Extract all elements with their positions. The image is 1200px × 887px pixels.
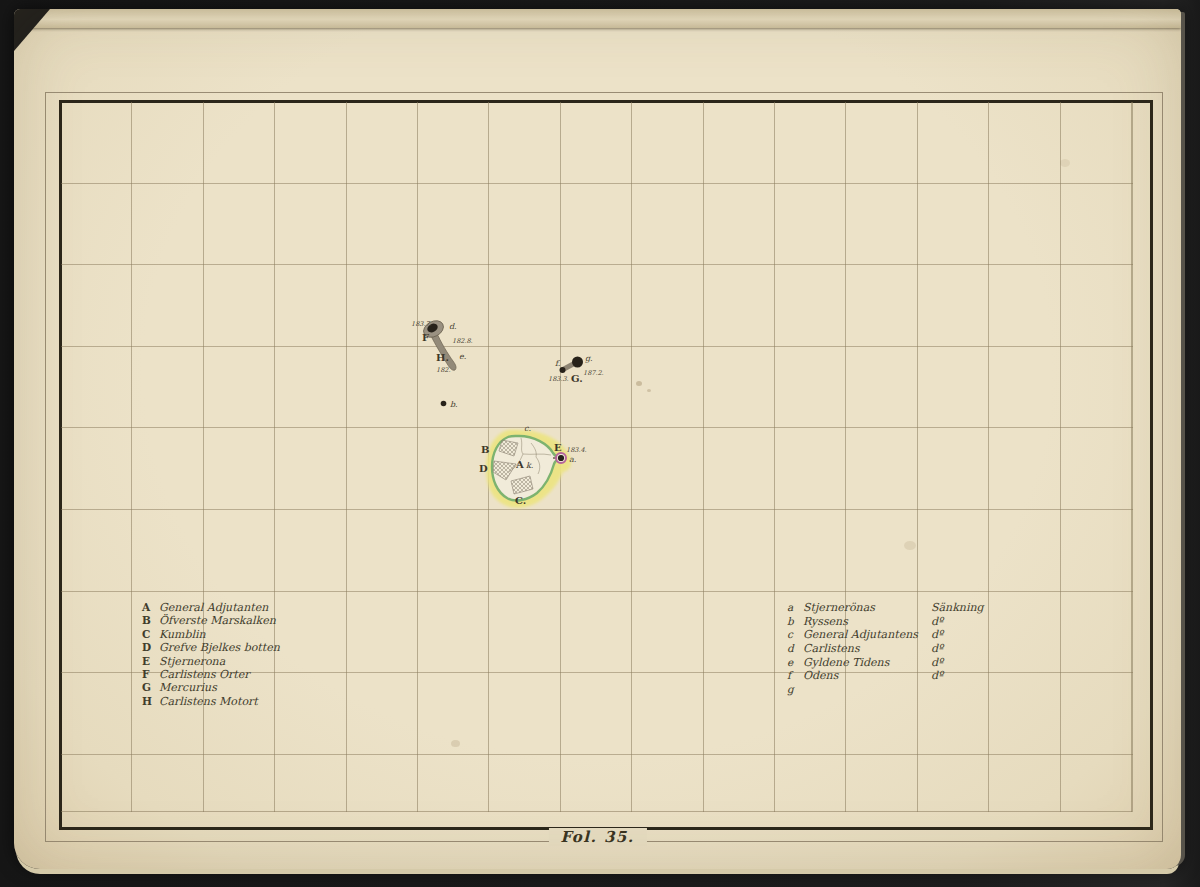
- point-b-marker: b.: [441, 400, 458, 409]
- feature-D-label: D: [479, 463, 488, 474]
- legend-name: Grefve Bjelkes botten: [159, 641, 280, 654]
- legend-row: HCarlistens Motort: [142, 695, 280, 708]
- legend-right: aStjernerönasSänkning bRyssensdº cGenera…: [787, 601, 984, 697]
- legend-row: eGyldene Tidensdº: [787, 656, 984, 670]
- legend-ditto: dº: [931, 628, 984, 642]
- legend-name: Stjernerona: [159, 655, 225, 668]
- shaft-G-small-dot: [560, 367, 566, 373]
- legend-key: B: [142, 614, 159, 627]
- map-sheet: 183.7. d. F 182.8. H. e. 182. f. g. 183.…: [14, 9, 1181, 869]
- legend-ditto: dº: [931, 656, 984, 670]
- legend-row: cGeneral Adjutantensdº: [787, 628, 984, 642]
- legend-ditto: [931, 683, 984, 697]
- elevation-label: 182.: [436, 366, 450, 374]
- feature-G-label: G.: [571, 373, 583, 384]
- elevation-label: 183.3.: [548, 375, 569, 383]
- legend-key: g: [787, 683, 803, 697]
- point-a-label: a.: [569, 455, 576, 464]
- legend-name: Carlistens: [803, 642, 931, 656]
- map-features-layer: 183.7. d. F 182.8. H. e. 182. f. g. 183.…: [14, 9, 1181, 869]
- legend-key: b: [787, 615, 803, 629]
- elevation-label: 187.2.: [583, 369, 604, 377]
- feature-E-label: E: [554, 442, 562, 453]
- legend-row: EStjernerona: [142, 655, 280, 668]
- point-E-dot: [558, 455, 564, 461]
- legend-row: g: [787, 683, 984, 697]
- point-g-label: g.: [585, 354, 593, 363]
- legend-name: Stjernerönas: [803, 601, 931, 615]
- shaft-G-feature: f. g. 183.3. G. 187.2.: [548, 354, 604, 384]
- legend-ditto: dº: [931, 669, 984, 683]
- legend-row: GMercurius: [142, 681, 280, 694]
- elevation-label: 182.8.: [452, 337, 473, 345]
- legend-key: c: [787, 628, 803, 642]
- feature-C-label: C.: [515, 495, 526, 506]
- elevation-label: 183.7.: [411, 320, 432, 328]
- elevation-label: 183.4.: [566, 446, 587, 454]
- legend-key: d: [787, 642, 803, 656]
- legend-ditto: Sänkning: [931, 601, 984, 615]
- legend-row: AGeneral Adjutanten: [142, 601, 280, 614]
- legend-name: Öfverste Marskalken: [159, 614, 276, 627]
- legend-key: D: [142, 641, 159, 654]
- point-k-label: k.: [526, 461, 533, 470]
- pond-A-feature: c. B E 183.4. a. D A k. C.: [479, 424, 587, 508]
- legend-key: f: [787, 669, 803, 683]
- legend-name: General Adjutanten: [159, 601, 268, 614]
- legend-key: H: [142, 695, 159, 708]
- legend-name: Odens: [803, 669, 931, 683]
- point-d-label: d.: [449, 322, 457, 331]
- legend-name: Ryssens: [803, 615, 931, 629]
- legend-row: BÖfverste Marskalken: [142, 614, 280, 627]
- folio-caption: Fol. 35.: [548, 828, 646, 846]
- shaft-H-feature: 183.7. d. F 182.8. H. e. 182.: [411, 317, 473, 374]
- legend-row: CKumblin: [142, 628, 280, 641]
- legend-key: A: [142, 601, 159, 614]
- legend-name: Carlistens Orter: [159, 668, 250, 681]
- legend-name: Carlistens Motort: [159, 695, 258, 708]
- legend-key: F: [142, 668, 159, 681]
- point-f-label: f.: [555, 359, 560, 368]
- legend-name: General Adjutantens: [803, 628, 931, 642]
- legend-row: DGrefve Bjelkes botten: [142, 641, 280, 654]
- point-b-dot: [441, 401, 447, 407]
- legend-key: e: [787, 656, 803, 670]
- legend-row: aStjernerönasSänkning: [787, 601, 984, 615]
- legend-name: [803, 683, 931, 697]
- legend-row: fOdensdº: [787, 669, 984, 683]
- point-b-label: b.: [450, 400, 458, 409]
- point-c-label: c.: [524, 424, 531, 433]
- legend-left: AGeneral Adjutanten BÖfverste Marskalken…: [142, 601, 280, 708]
- feature-F-label: F: [422, 332, 429, 343]
- legend-row: bRyssensdº: [787, 615, 984, 629]
- feature-A-label: A: [515, 459, 524, 470]
- legend-row: FCarlistens Orter: [142, 668, 280, 681]
- legend-ditto: dº: [931, 615, 984, 629]
- legend-key: C: [142, 628, 159, 641]
- legend-key: a: [787, 601, 803, 615]
- shaft-G-large-dot: [572, 357, 583, 368]
- legend-ditto: dº: [931, 642, 984, 656]
- feature-H-label: H.: [436, 352, 449, 363]
- legend-name: Gyldene Tidens: [803, 656, 931, 670]
- legend-key: E: [142, 655, 159, 668]
- legend-name: Kumblin: [159, 628, 206, 641]
- legend-name: Mercurius: [159, 681, 217, 694]
- legend-row: dCarlistensdº: [787, 642, 984, 656]
- legend-key: G: [142, 681, 159, 694]
- point-e-label: e.: [459, 352, 466, 361]
- feature-B-label: B: [481, 444, 489, 455]
- photo-background: 183.7. d. F 182.8. H. e. 182. f. g. 183.…: [0, 0, 1200, 887]
